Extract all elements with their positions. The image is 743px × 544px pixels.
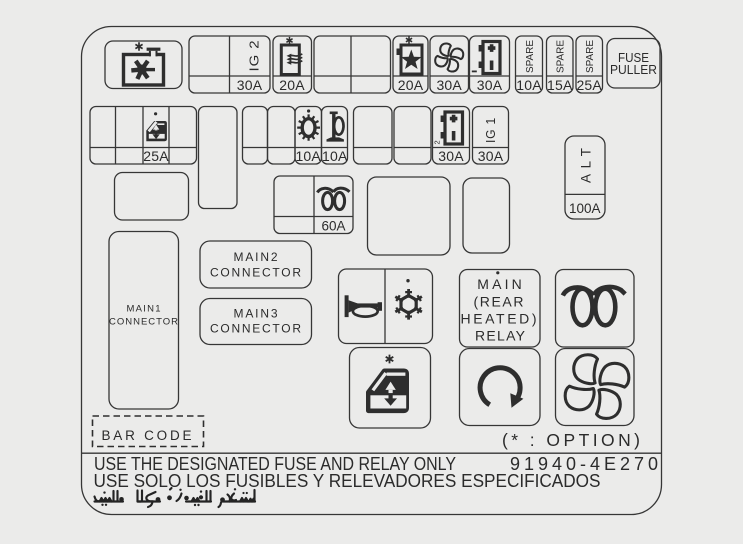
- svg-text:30A: 30A: [438, 148, 464, 164]
- svg-text:2: 2: [433, 140, 442, 144]
- svg-text:MAIN2: MAIN2: [234, 250, 278, 264]
- svg-text:60A: 60A: [321, 219, 345, 234]
- svg-text:IG 2: IG 2: [247, 40, 262, 72]
- svg-text:10A: 10A: [516, 77, 542, 93]
- svg-text:25A: 25A: [576, 77, 602, 93]
- svg-text:MAIN3: MAIN3: [234, 307, 278, 321]
- svg-text:BAR CODE: BAR CODE: [102, 428, 192, 443]
- svg-text:USE SOLO LOS FUSIBLES Y RELEVA: USE SOLO LOS FUSIBLES Y RELEVADORES ESPE…: [94, 471, 601, 491]
- svg-text:(REAR: (REAR: [474, 294, 524, 310]
- svg-text:15A: 15A: [547, 77, 573, 93]
- svg-text:SPARE: SPARE: [584, 40, 596, 73]
- svg-text:MAIN1: MAIN1: [127, 304, 161, 315]
- svg-text:10A: 10A: [322, 148, 348, 164]
- svg-text:SPARE: SPARE: [555, 40, 567, 73]
- svg-text:20A: 20A: [398, 77, 424, 93]
- svg-text:30A: 30A: [436, 77, 462, 93]
- svg-text:MAIN: MAIN: [477, 276, 522, 292]
- svg-text:IG 1: IG 1: [483, 117, 498, 143]
- svg-text:(* : OPTION): (* : OPTION): [502, 430, 640, 450]
- svg-text:30A: 30A: [237, 77, 263, 93]
- svg-text:30A: 30A: [478, 148, 504, 164]
- svg-text:CONNECTOR: CONNECTOR: [210, 266, 301, 280]
- svg-text:20A: 20A: [279, 77, 305, 93]
- svg-text:ALT: ALT: [579, 148, 594, 183]
- svg-text:SPARE: SPARE: [524, 40, 536, 73]
- svg-text:10A: 10A: [295, 148, 321, 164]
- svg-text:30A: 30A: [477, 77, 503, 93]
- svg-text:100A: 100A: [569, 201, 601, 216]
- svg-text:25A: 25A: [143, 148, 169, 164]
- svg-text:CONNECTOR: CONNECTOR: [210, 322, 301, 336]
- svg-text:CONNECTOR: CONNECTOR: [109, 317, 178, 328]
- svg-text:PULLER: PULLER: [610, 63, 657, 77]
- svg-text:RELAY: RELAY: [475, 328, 526, 344]
